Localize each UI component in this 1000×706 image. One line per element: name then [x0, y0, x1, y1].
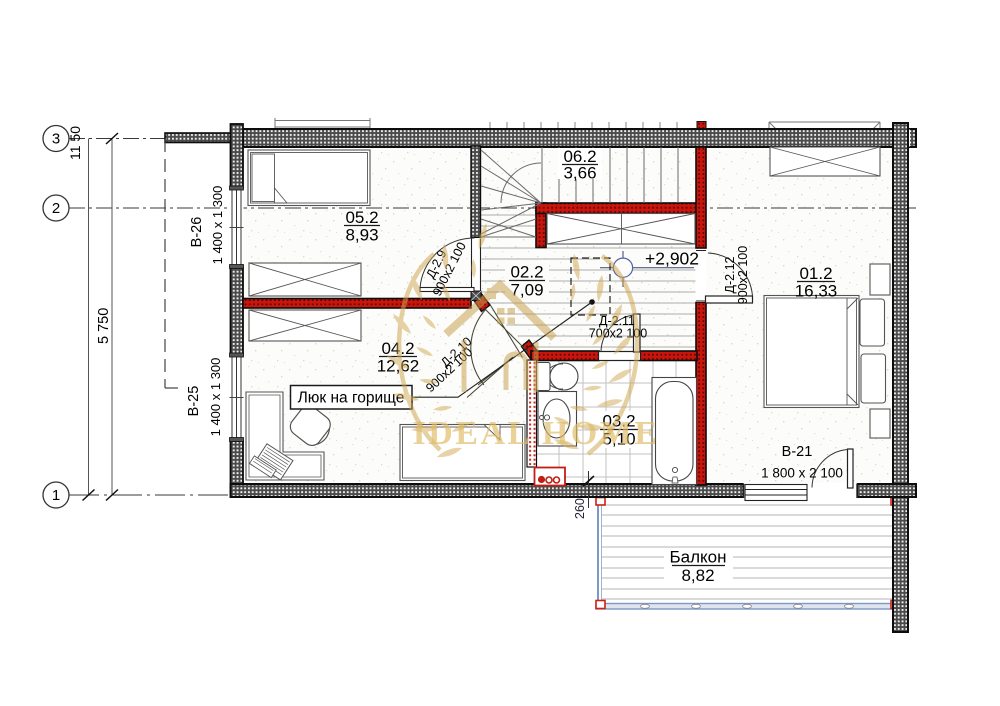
svg-text:05.2: 05.2: [345, 208, 378, 227]
svg-text:1 800 х 2 100: 1 800 х 2 100: [761, 466, 843, 481]
svg-text:02.2: 02.2: [510, 263, 543, 282]
svg-text:Балкон: Балкон: [669, 548, 726, 567]
svg-text:1 400 х 1 300: 1 400 х 1 300: [210, 186, 225, 265]
svg-text:Люк на горище: Люк на горище: [298, 390, 405, 407]
svg-text:11 50: 11 50: [67, 126, 83, 160]
svg-text:260: 260: [573, 498, 587, 519]
svg-text:В-21: В-21: [782, 444, 813, 460]
svg-text:3,66: 3,66: [563, 164, 596, 183]
svg-text:IDEAL HOME: IDEAL HOME: [413, 415, 660, 452]
svg-text:5 750: 5 750: [96, 308, 112, 344]
svg-text:В-25: В-25: [186, 386, 202, 417]
svg-text:1: 1: [52, 487, 60, 504]
svg-text:2: 2: [52, 200, 60, 217]
svg-text:+2,902: +2,902: [645, 249, 699, 269]
svg-text:Д-2.12: Д-2.12: [723, 256, 737, 293]
svg-text:8,93: 8,93: [345, 226, 378, 245]
svg-text:01.2: 01.2: [799, 264, 832, 283]
svg-text:8,82: 8,82: [681, 566, 714, 585]
svg-text:3: 3: [52, 131, 60, 148]
svg-text:В-26: В-26: [189, 217, 205, 248]
svg-text:1 400 х 1 300: 1 400 х 1 300: [208, 358, 223, 437]
svg-text:900х2 100: 900х2 100: [736, 246, 750, 304]
svg-text:16,33: 16,33: [795, 282, 838, 301]
